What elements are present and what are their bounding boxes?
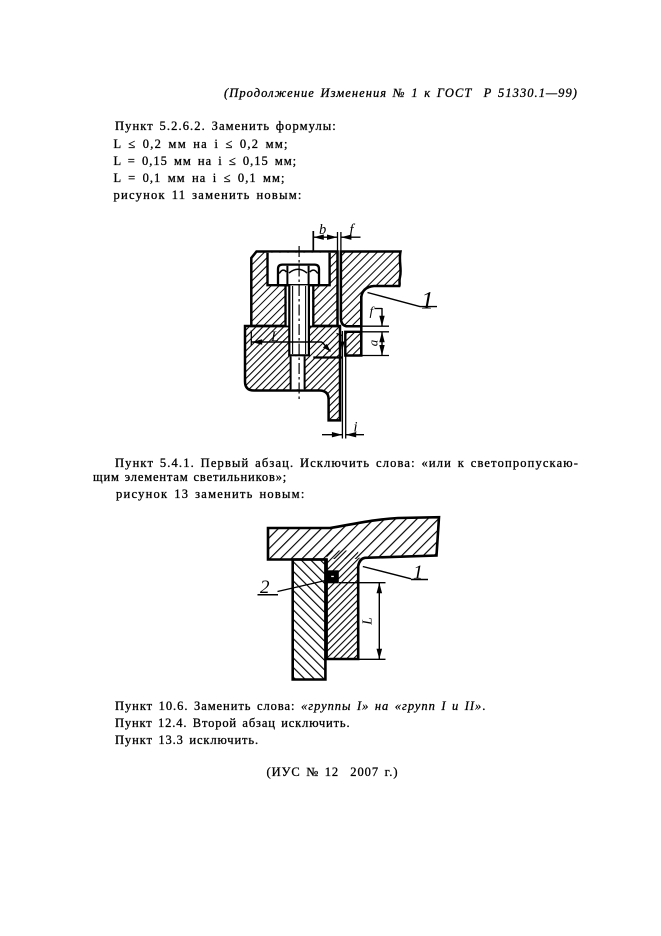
svg-text:L: L: [360, 617, 375, 626]
svg-text:f: f: [370, 304, 376, 319]
svg-text:f: f: [350, 222, 356, 238]
svg-text:b: b: [319, 222, 326, 238]
svg-text:a: a: [366, 339, 381, 346]
svg-text:L: L: [270, 329, 279, 345]
svg-text:i: i: [354, 420, 358, 436]
svg-text:1: 1: [421, 286, 434, 315]
